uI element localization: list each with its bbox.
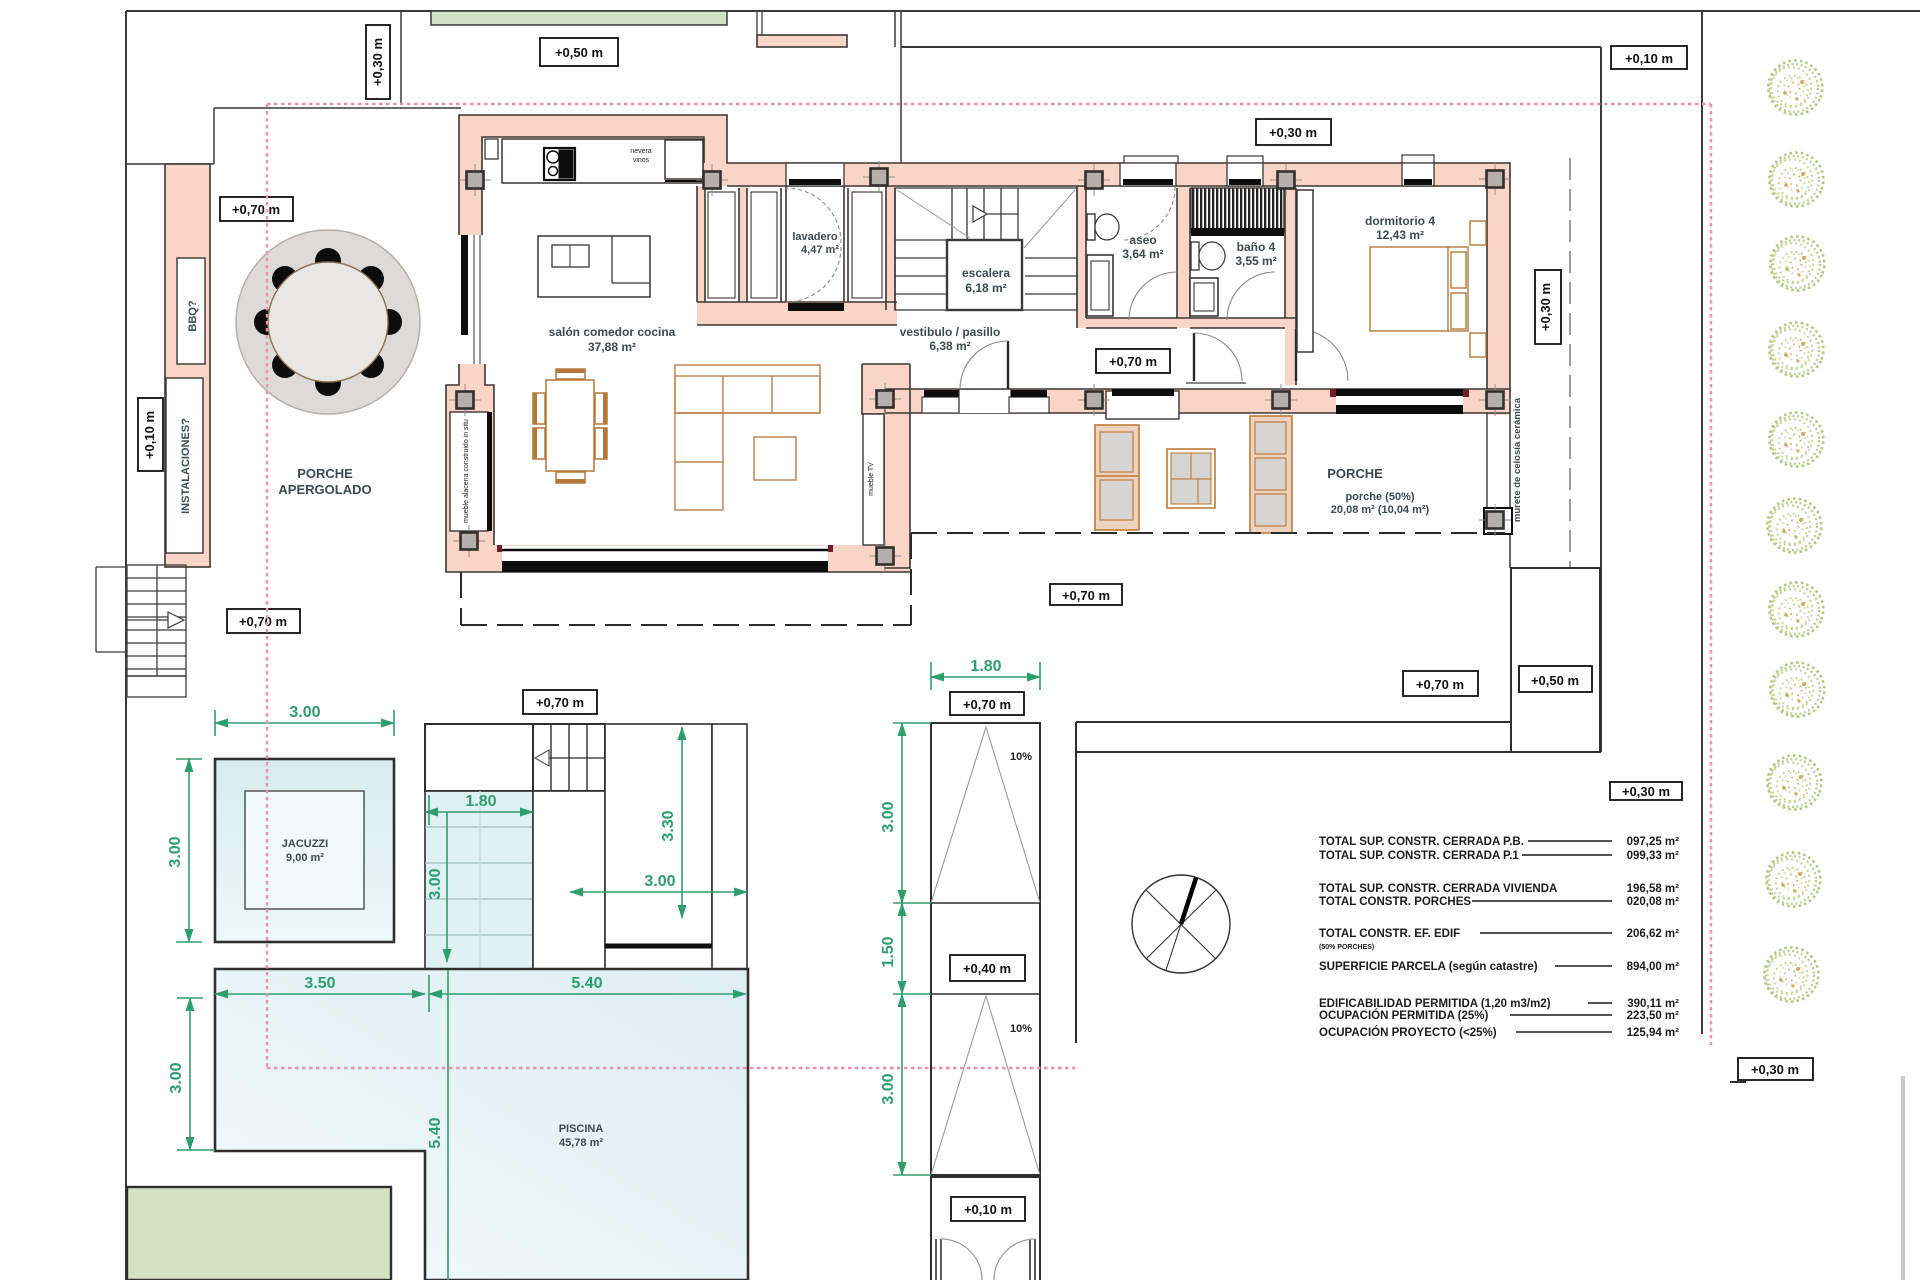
svg-text:+0,70 m: +0,70 m — [1062, 588, 1110, 603]
svg-text:45,78 m²: 45,78 m² — [559, 1137, 603, 1149]
svg-text:+0,30 m: +0,30 m — [1269, 125, 1317, 140]
svg-text:1.80: 1.80 — [970, 658, 1001, 675]
svg-text:+0,10 m: +0,10 m — [142, 411, 157, 459]
svg-text:+0,10 m: +0,10 m — [1625, 51, 1673, 66]
svg-text:INSTALACIONES?: INSTALACIONES? — [180, 418, 192, 514]
svg-text:BBQ?: BBQ? — [187, 300, 199, 331]
svg-text:+0,30 m: +0,30 m — [1538, 283, 1553, 331]
svg-text:3.00: 3.00 — [644, 873, 675, 890]
svg-text:mueble TV: mueble TV — [868, 462, 875, 496]
svg-text:125,94 m²: 125,94 m² — [1627, 1027, 1680, 1039]
svg-text:+0,70 m: +0,70 m — [963, 697, 1011, 712]
svg-text:OCUPACIÓN PROYECTO (<25%): OCUPACIÓN PROYECTO (<25%) — [1319, 1026, 1497, 1039]
svg-text:3.00: 3.00 — [289, 704, 320, 721]
svg-text:37,88 m²: 37,88 m² — [588, 340, 636, 354]
svg-text:+0,50 m: +0,50 m — [1531, 673, 1579, 688]
svg-text:1.50: 1.50 — [880, 936, 897, 967]
svg-text:12,43 m²: 12,43 m² — [1376, 228, 1424, 242]
svg-text:vestibulo / pasillo: vestibulo / pasillo — [900, 325, 1001, 339]
svg-text:4,47 m²: 4,47 m² — [801, 244, 839, 256]
svg-text:099,33 m²: 099,33 m² — [1627, 850, 1680, 862]
svg-text:PORCHE: PORCHE — [1327, 466, 1383, 481]
svg-text:nevera: nevera — [630, 148, 652, 155]
svg-text:+0,70 m: +0,70 m — [232, 202, 280, 217]
svg-text:223,50 m²: 223,50 m² — [1627, 1010, 1680, 1022]
svg-text:3.00: 3.00 — [880, 801, 897, 832]
svg-text:20,08 m² (10,04 m²): 20,08 m² (10,04 m²) — [1331, 504, 1430, 516]
svg-text:+0,70 m: +0,70 m — [239, 614, 287, 629]
svg-text:5.40: 5.40 — [427, 1117, 444, 1148]
svg-text:020,08 m²: 020,08 m² — [1627, 896, 1680, 908]
svg-text:6,18 m²: 6,18 m² — [965, 281, 1006, 295]
svg-text:+0,30 m: +0,30 m — [1622, 784, 1670, 799]
svg-text:porche (50%): porche (50%) — [1345, 491, 1414, 503]
svg-text:206,62 m²: 206,62 m² — [1627, 928, 1680, 940]
svg-text:097,25 m²: 097,25 m² — [1627, 836, 1680, 848]
svg-text:3,64 m²: 3,64 m² — [1122, 247, 1163, 261]
svg-text:PORCHE: PORCHE — [297, 466, 353, 481]
svg-text:10%: 10% — [1010, 751, 1032, 763]
svg-text:+0,50 m: +0,50 m — [555, 45, 603, 60]
svg-text:196,58 m²: 196,58 m² — [1627, 883, 1680, 895]
svg-text:3.50: 3.50 — [304, 975, 335, 992]
svg-text:PISCINA: PISCINA — [559, 1123, 604, 1135]
svg-text:TOTAL SUP. CONSTR. CERRADA VIV: TOTAL SUP. CONSTR. CERRADA VIVIENDA — [1319, 883, 1557, 895]
svg-text:3.00: 3.00 — [167, 836, 184, 867]
svg-text:+0,70 m: +0,70 m — [536, 695, 584, 710]
svg-text:JACUZZI: JACUZZI — [282, 838, 328, 850]
svg-text:salón comedor cocina: salón comedor cocina — [549, 325, 676, 339]
svg-text:murete de celosía cerámica: murete de celosía cerámica — [1512, 397, 1523, 522]
svg-text:OCUPACIÓN PERMITIDA (25%): OCUPACIÓN PERMITIDA (25%) — [1319, 1009, 1488, 1022]
svg-text:baño 4: baño 4 — [1237, 240, 1276, 254]
svg-text:+0,30 m: +0,30 m — [370, 38, 385, 86]
svg-text:3.00: 3.00 — [168, 1062, 185, 1093]
svg-text:+0,70 m: +0,70 m — [1109, 354, 1157, 369]
svg-text:aseo: aseo — [1129, 233, 1156, 247]
svg-text:vinos: vinos — [633, 157, 650, 164]
svg-text:3,55 m²: 3,55 m² — [1235, 254, 1276, 268]
svg-text:6,38 m²: 6,38 m² — [929, 339, 970, 353]
svg-text:3.00: 3.00 — [427, 868, 444, 899]
svg-text:894,00 m²: 894,00 m² — [1627, 961, 1680, 973]
svg-text:escalera: escalera — [962, 266, 1010, 280]
svg-text:TOTAL CONSTR. EF. EDIF: TOTAL CONSTR. EF. EDIF — [1319, 928, 1460, 940]
svg-text:+0,30 m: +0,30 m — [1751, 1062, 1799, 1077]
svg-text:+0,10 m: +0,10 m — [964, 1202, 1012, 1217]
svg-text:dormitorio 4: dormitorio 4 — [1365, 214, 1435, 228]
svg-text:EDIFICABILIDAD PERMITIDA (1,20: EDIFICABILIDAD PERMITIDA (1,20 m3/m2) — [1319, 998, 1551, 1010]
svg-text:3.00: 3.00 — [880, 1073, 897, 1104]
svg-text:+0,40 m: +0,40 m — [963, 961, 1011, 976]
svg-text:SUPERFICIE PARCELA (según cata: SUPERFICIE PARCELA (según catastre) — [1319, 961, 1538, 973]
svg-text:+0,70 m: +0,70 m — [1416, 677, 1464, 692]
svg-text:TOTAL SUP. CONSTR. CERRADA P.B: TOTAL SUP. CONSTR. CERRADA P.B. — [1319, 836, 1524, 848]
svg-text:10%: 10% — [1010, 1023, 1032, 1035]
svg-text:mueble alacena construido in s: mueble alacena construido in situ — [463, 419, 470, 523]
svg-text:TOTAL SUP. CONSTR. CERRADA P.1: TOTAL SUP. CONSTR. CERRADA P.1 — [1319, 850, 1519, 862]
svg-text:3.30: 3.30 — [660, 810, 677, 841]
svg-text:lavadero: lavadero — [792, 231, 838, 243]
svg-text:9,00 m²: 9,00 m² — [286, 852, 324, 864]
svg-text:390,11 m²: 390,11 m² — [1627, 998, 1679, 1010]
svg-text:(50% PORCHES): (50% PORCHES) — [1319, 944, 1374, 951]
svg-text:5.40: 5.40 — [571, 975, 602, 992]
svg-text:1.80: 1.80 — [465, 793, 496, 810]
svg-text:TOTAL CONSTR. PORCHES: TOTAL CONSTR. PORCHES — [1319, 896, 1471, 908]
svg-text:APERGOLADO: APERGOLADO — [278, 482, 371, 497]
